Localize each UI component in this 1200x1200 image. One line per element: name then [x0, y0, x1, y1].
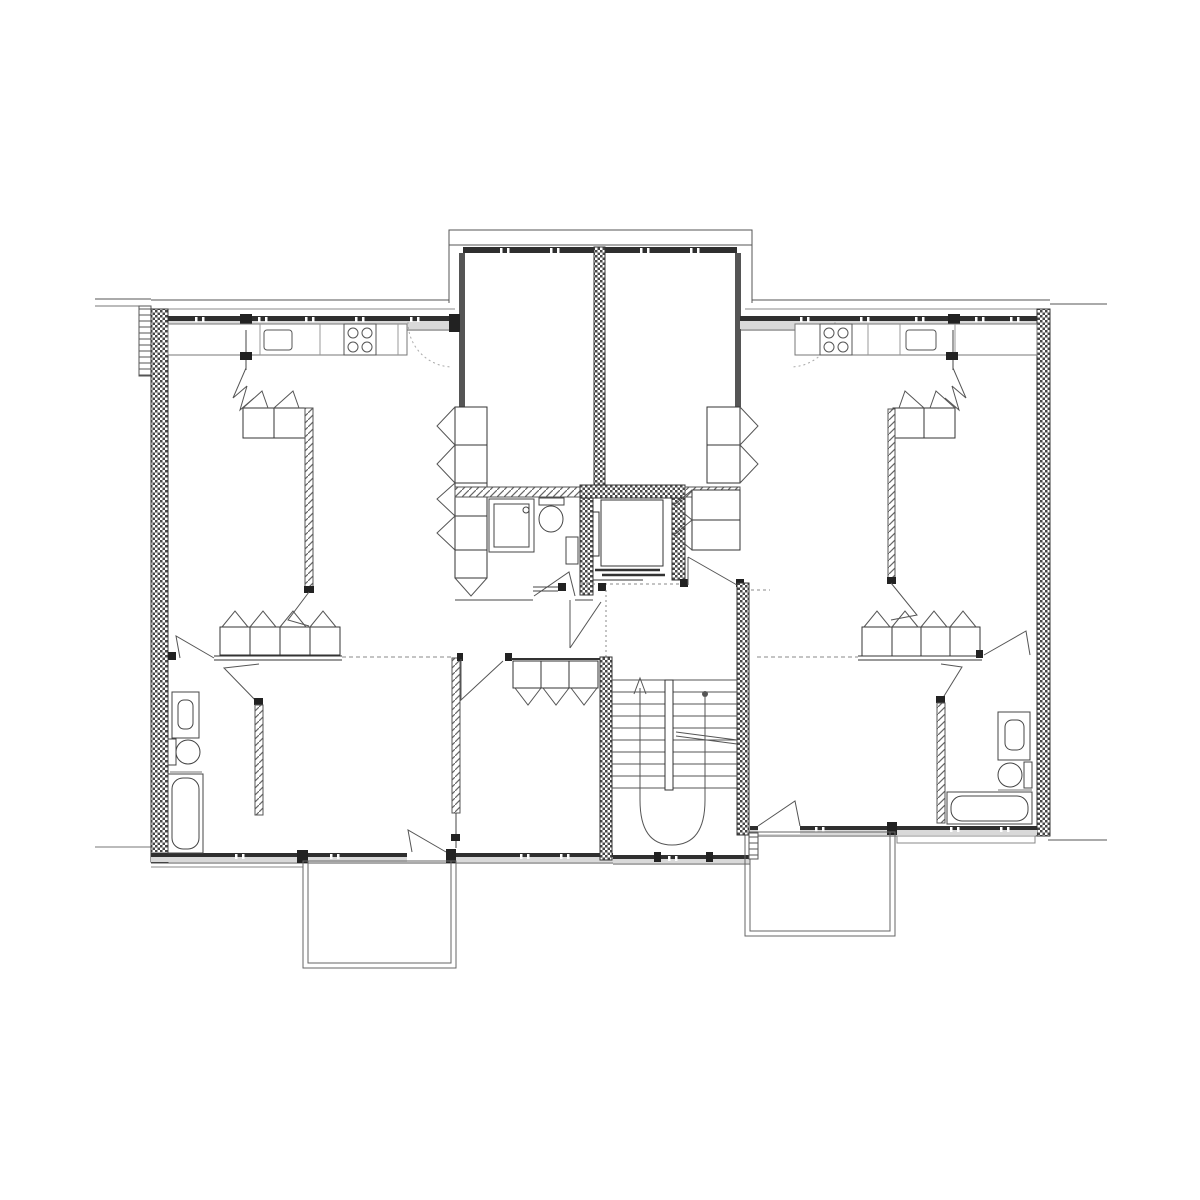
bathtub-left [168, 774, 203, 853]
bay-divider-wall [594, 247, 605, 497]
window-mullions-top-right [982, 317, 985, 322]
window-band-stair-dark [613, 855, 750, 859]
window-band-stair-gray [613, 859, 750, 863]
window-mullions-bottom-left [527, 854, 530, 859]
entry-door-jamb [558, 583, 566, 591]
window-mullions-bottom-left [242, 854, 245, 859]
stair-band-post-b [706, 852, 713, 862]
partition-wall-left-unit [305, 408, 313, 592]
door-hinge-right [946, 352, 958, 360]
window-mullions-top-left [410, 317, 413, 322]
bay-window-mullions [557, 248, 560, 253]
door-hinge-left [240, 352, 252, 360]
window-mullions-top-right [975, 317, 978, 322]
window-mullions-bottom-right [1000, 827, 1003, 832]
window-mullions-top-right [1010, 317, 1013, 322]
door-hinge [254, 698, 263, 705]
bathroom-wall-center-left [455, 487, 580, 497]
window-band-bottom-left-dark [151, 853, 613, 857]
entry-door-jamb [680, 579, 688, 587]
door-jamb [505, 653, 512, 661]
door-jamb [168, 652, 176, 660]
window-mullions-top-right [1017, 317, 1020, 322]
window-band-top-right-dark [740, 316, 1037, 321]
door-jamb [457, 653, 463, 661]
cabinet-column [455, 516, 487, 550]
bathtub-right [947, 792, 1032, 824]
window-mullions-stair [668, 856, 671, 861]
window-mullions-bottom-left [235, 854, 238, 859]
window-mullions-bottom-right [822, 827, 825, 832]
floor-plan-drawing [0, 0, 1200, 1200]
stair-stringer [665, 680, 673, 790]
paper-background [0, 0, 1200, 1200]
cabinet-column [692, 490, 740, 520]
elevator-shaft-top-wall [580, 485, 685, 498]
window-mullions-top-left [312, 317, 315, 322]
window-mullions-top-right [860, 317, 863, 322]
window-mullions-bottom-left [330, 854, 333, 859]
entry-jamb-top-left [449, 314, 460, 332]
cabinet-column [692, 520, 740, 550]
window-mullions-top-left [265, 317, 268, 322]
stair-band-post-a [654, 852, 661, 862]
balcony-door-gap-right [758, 825, 800, 834]
partition-wall-right-unit [888, 409, 895, 583]
context-party-wall-left [139, 306, 151, 376]
exterior-wall-left [151, 309, 168, 862]
window-mullions-bottom-right [1007, 827, 1010, 832]
cabinet-column [707, 445, 740, 483]
bay-parapet [449, 230, 752, 245]
bay-window-mullions [647, 248, 650, 253]
sink-right [998, 712, 1030, 760]
bathroom-partition-right [937, 703, 945, 823]
window-mullions-stair [675, 856, 678, 861]
window-mullions-top-right [807, 317, 810, 322]
bay-window-mullions [697, 248, 700, 253]
bay-window-mullions [507, 248, 510, 253]
window-mullions-top-left [305, 317, 308, 322]
entry-door-jamb [598, 583, 606, 591]
stair-guide-start [702, 691, 708, 697]
window-mullions-top-left [355, 317, 358, 322]
floor-grate [749, 833, 758, 859]
window-mullions-bottom-right [690, 827, 693, 832]
door-jamb [976, 650, 983, 658]
window-mullions-top-right [915, 317, 918, 322]
window-mullions-top-right [922, 317, 925, 322]
window-mullions-bottom-right [815, 827, 818, 832]
cabinet-column [707, 407, 740, 445]
window-mullions-bottom-left [560, 854, 563, 859]
window-mullions-top-left [417, 317, 420, 322]
window-mullions-bottom-left [567, 854, 570, 859]
wardrobe-row-hall [513, 661, 598, 688]
elevator-door-mech [593, 512, 599, 556]
bedroom-partition-left [452, 658, 460, 813]
sink-left [172, 692, 199, 738]
window-mullions-bottom-right [957, 827, 960, 832]
cabinet-column [455, 550, 487, 578]
elevator-shaft-left-wall [580, 498, 593, 595]
window-mullions-top-left [202, 317, 205, 322]
bay-window-mullions [500, 248, 503, 253]
cabinet-column [455, 445, 487, 483]
door-hinge [304, 586, 314, 593]
cabinet-column [455, 407, 487, 445]
bay-window-mullions [690, 248, 693, 253]
floor-plan-sheet [0, 0, 1200, 1200]
window-mullions-top-left [258, 317, 261, 322]
door-hinge [936, 696, 945, 703]
door-hinge [451, 834, 460, 841]
elevator-car [601, 500, 663, 566]
window-mullions-top-left [195, 317, 198, 322]
exterior-wall-right [1037, 309, 1050, 836]
bay-window-mullions [640, 248, 643, 253]
bathroom-partition-left [255, 705, 263, 815]
stairwell-wall-right [737, 583, 749, 835]
window-mullions-top-right [867, 317, 870, 322]
window-mullions-bottom-right [950, 827, 953, 832]
stairwell-wall-left [600, 657, 612, 860]
window-mullions-bottom-left [520, 854, 523, 859]
window-mullions-top-left [362, 317, 365, 322]
window-mullions-top-right [800, 317, 803, 322]
bay-window-mullions [550, 248, 553, 253]
window-mullions-bottom-left [337, 854, 340, 859]
